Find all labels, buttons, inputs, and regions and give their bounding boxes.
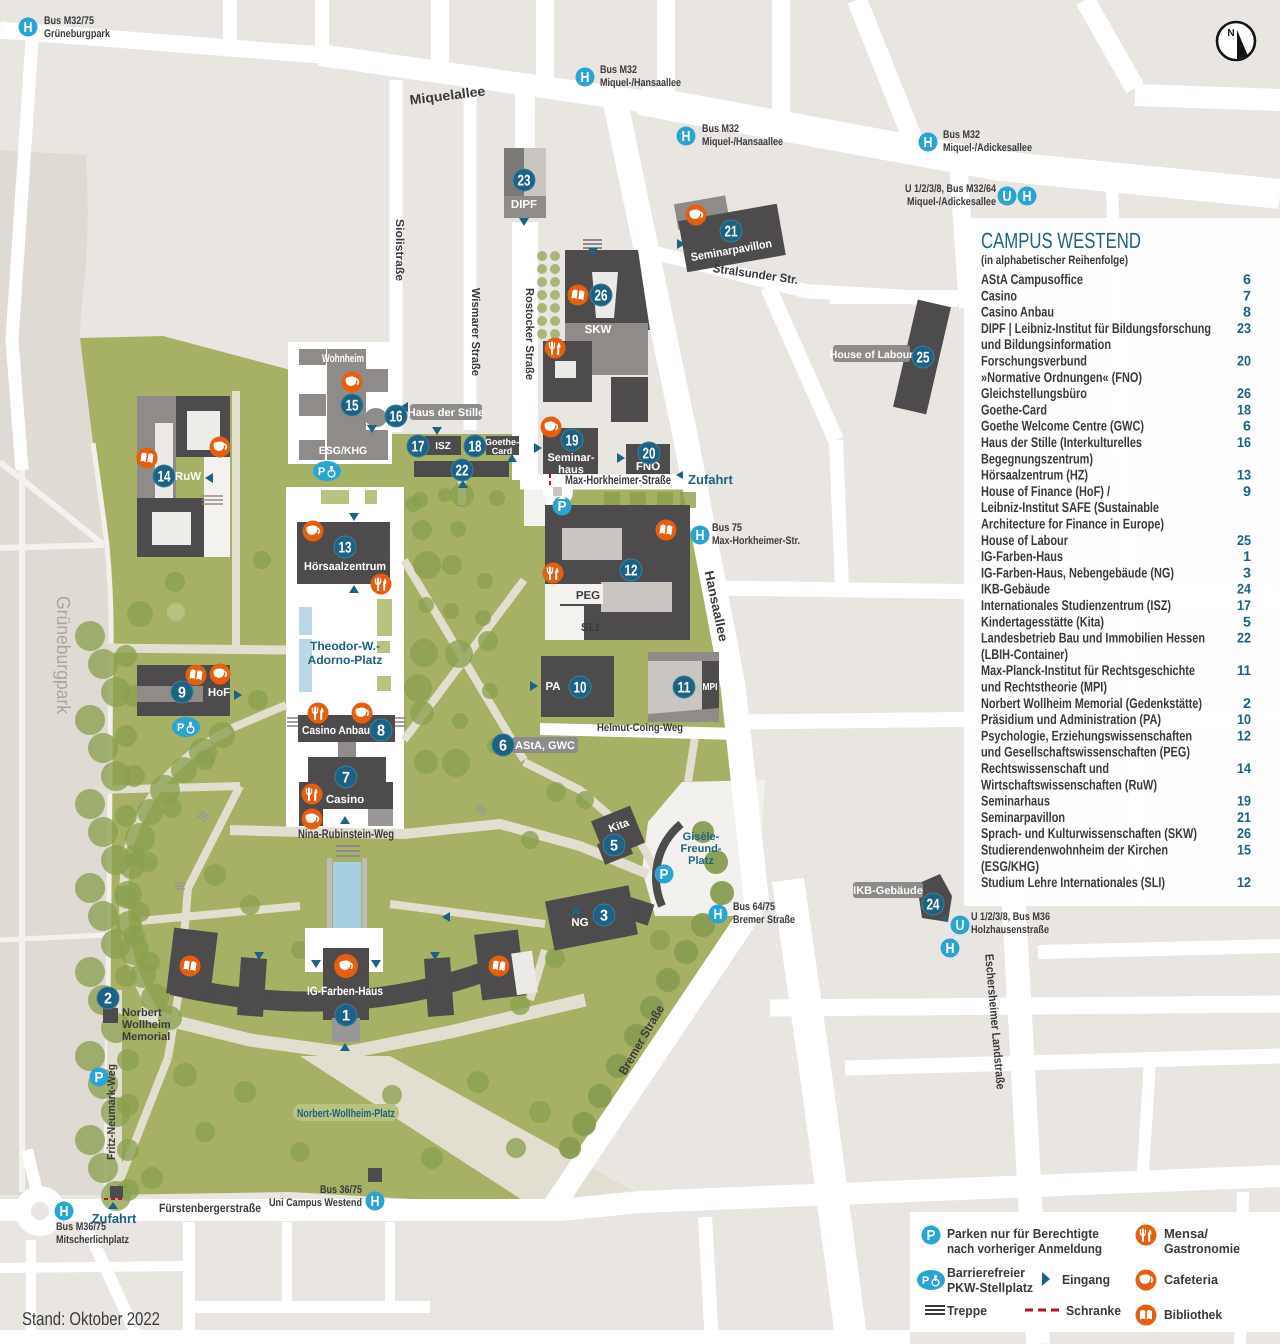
svg-text:Eingang: Eingang — [1062, 1272, 1110, 1287]
svg-text:Seminarpavillon: Seminarpavillon — [981, 809, 1065, 825]
svg-text:17: 17 — [1237, 597, 1251, 613]
svg-text:24: 24 — [1237, 581, 1251, 597]
svg-text:U 1/2/3/8, Bus M36: U 1/2/3/8, Bus M36 — [971, 911, 1050, 923]
svg-text:Architecture for Finance in Eu: Architecture for Finance in Europe) — [981, 516, 1164, 532]
svg-text:IG-Farben-Haus: IG-Farben-Haus — [981, 548, 1063, 564]
svg-text:18: 18 — [469, 439, 482, 456]
svg-text:Zufahrt: Zufahrt — [688, 472, 733, 487]
svg-text:Internationales Studienzentrum: Internationales Studienzentrum (ISZ) — [981, 597, 1171, 613]
svg-text:Miquel-/Adickesallee: Miquel-/Adickesallee — [907, 196, 996, 208]
svg-text:Rechtswissenschaft und: Rechtswissenschaft und — [981, 760, 1109, 776]
svg-text:16: 16 — [1237, 434, 1251, 450]
svg-text:Hörsaalzentrum: Hörsaalzentrum — [304, 561, 386, 573]
svg-text:Platz: Platz — [688, 855, 714, 867]
svg-text:Seminar-: Seminar- — [547, 452, 594, 464]
svg-text:IKB-Gebäude: IKB-Gebäude — [981, 581, 1050, 597]
svg-text:6: 6 — [1243, 418, 1251, 434]
svg-text:Forschungsverbund: Forschungsverbund — [981, 353, 1087, 369]
svg-text:Sprach- und Kulturwissenschaft: Sprach- und Kulturwissenschaften (SKW) — [981, 825, 1197, 841]
svg-text:DIPF | Leibniz-Institut für Bi: DIPF | Leibniz-Institut für Bildungsfors… — [981, 320, 1211, 337]
svg-text:H: H — [682, 129, 691, 145]
svg-text:Fürstenbergerstraße: Fürstenbergerstraße — [159, 1201, 261, 1215]
svg-text:HoF: HoF — [208, 687, 230, 699]
svg-text:ESG/KHG: ESG/KHG — [319, 445, 367, 457]
svg-text:Norbert Wollheim Memorial (Ged: Norbert Wollheim Memorial (Gedenkstätte) — [981, 695, 1202, 711]
svg-text:Uni Campus Westend: Uni Campus Westend — [269, 1197, 362, 1209]
svg-text:Bus 36/75: Bus 36/75 — [320, 1184, 362, 1196]
svg-text:Casino: Casino — [326, 794, 364, 806]
svg-text:12: 12 — [1237, 727, 1251, 743]
svg-text:Grüneburgpark: Grüneburgpark — [52, 596, 73, 714]
svg-text:Max-Horkheimer-Str.: Max-Horkheimer-Str. — [712, 535, 800, 547]
svg-text:IG-Farben-Haus, Nebengebäude (: IG-Farben-Haus, Nebengebäude (NG) — [981, 564, 1174, 580]
svg-text:10: 10 — [574, 680, 587, 697]
svg-text:Studierendenwohnheim der Kirch: Studierendenwohnheim der Kirchen — [981, 842, 1168, 858]
svg-text:Stand: Oktober 2022: Stand: Oktober 2022 — [22, 1308, 160, 1329]
svg-text:PEG: PEG — [576, 590, 600, 602]
svg-text:House of Labour: House of Labour — [830, 349, 913, 361]
svg-text:haus: haus — [558, 464, 584, 476]
svg-text:Gleichstellungsbüro: Gleichstellungsbüro — [981, 385, 1087, 401]
svg-text:Leibniz-Institut SAFE (Sustain: Leibniz-Institut SAFE (Sustainable — [981, 499, 1159, 515]
svg-text:und Gesellschaftswissenschafte: und Gesellschaftswissenschaften (PEG) — [981, 744, 1190, 760]
svg-text:21: 21 — [1237, 809, 1251, 825]
svg-text:Miquel-/Hansaallee: Miquel-/Hansaallee — [600, 77, 681, 89]
svg-text:Treppe: Treppe — [947, 1303, 987, 1318]
svg-text:P: P — [95, 1070, 104, 1086]
svg-text:8: 8 — [1243, 304, 1251, 320]
svg-text:9: 9 — [1243, 483, 1251, 499]
svg-text:P: P — [922, 1275, 929, 1287]
svg-text:11: 11 — [678, 680, 691, 697]
svg-text:19: 19 — [566, 433, 579, 450]
svg-text:26: 26 — [1237, 385, 1251, 401]
svg-text:12: 12 — [625, 563, 638, 580]
svg-text:21: 21 — [725, 224, 738, 241]
svg-text:House of Finance (HoF) /: House of Finance (HoF) / — [981, 483, 1110, 499]
svg-text:6: 6 — [499, 738, 507, 755]
svg-text:16: 16 — [390, 409, 403, 426]
svg-text:22: 22 — [456, 463, 469, 480]
svg-text:Hörsaalzentrum (HZ): Hörsaalzentrum (HZ) — [981, 467, 1088, 483]
svg-text:5: 5 — [610, 838, 618, 855]
svg-text:U: U — [1003, 189, 1012, 205]
svg-text:H: H — [581, 70, 590, 86]
svg-text:1: 1 — [1243, 548, 1251, 564]
svg-text:10: 10 — [1237, 711, 1251, 727]
svg-text:Max-Planck-Institut für Rechts: Max-Planck-Institut für Rechtsgeschichte — [981, 662, 1195, 678]
svg-text:Bus 64/75: Bus 64/75 — [733, 901, 775, 913]
svg-text:H: H — [371, 1194, 380, 1210]
svg-text:DIPF: DIPF — [511, 199, 537, 211]
svg-text:23: 23 — [518, 173, 531, 190]
svg-text:7: 7 — [1243, 287, 1251, 303]
svg-text:Norbert-Wollheim-Platz: Norbert-Wollheim-Platz — [297, 1108, 395, 1120]
svg-text:Casino Anbau: Casino Anbau — [981, 304, 1054, 320]
svg-text:Mensa/: Mensa/ — [1164, 1226, 1208, 1241]
svg-text:Gisèle-: Gisèle- — [683, 831, 720, 843]
svg-text:Bus 75: Bus 75 — [712, 522, 742, 534]
svg-text:U: U — [956, 918, 965, 934]
svg-text:Freund-: Freund- — [681, 843, 722, 855]
svg-text:(in alphabetischer Reihenfolge: (in alphabetischer Reihenfolge) — [981, 253, 1128, 267]
svg-text:Cafeteria: Cafeteria — [1164, 1272, 1219, 1287]
svg-text:25: 25 — [1237, 532, 1251, 548]
svg-text:26: 26 — [1237, 825, 1251, 841]
svg-text:20: 20 — [1237, 353, 1251, 369]
svg-text:nach vorheriger Anmeldung: nach vorheriger Anmeldung — [947, 1241, 1102, 1256]
svg-text:H: H — [924, 135, 933, 151]
svg-text:22: 22 — [1237, 630, 1251, 646]
svg-text:Bibliothek: Bibliothek — [1164, 1307, 1223, 1322]
svg-text:3: 3 — [1243, 564, 1251, 580]
svg-text:14: 14 — [158, 469, 171, 486]
svg-text:Grüneburgpark: Grüneburgpark — [44, 28, 111, 40]
svg-text:H: H — [1023, 189, 1032, 205]
svg-text:P: P — [318, 466, 325, 478]
svg-text:IG-Farben-Haus: IG-Farben-Haus — [307, 984, 383, 998]
svg-text:NG: NG — [571, 917, 588, 929]
svg-text:P: P — [660, 867, 669, 883]
svg-text:(LBIH-Container): (LBIH-Container) — [981, 646, 1068, 662]
svg-text:Parken nur für Berechtigte: Parken nur für Berechtigte — [947, 1226, 1099, 1241]
svg-text:Casino Anbau: Casino Anbau — [302, 725, 370, 737]
svg-text:Bus M32: Bus M32 — [600, 64, 637, 76]
svg-text:Studium Lehre Internationales: Studium Lehre Internationales (SLI) — [981, 874, 1165, 890]
svg-text:5: 5 — [1243, 613, 1251, 629]
svg-text:Miquel-/Hansaallee: Miquel-/Hansaallee — [702, 136, 783, 148]
svg-text:17: 17 — [412, 439, 425, 456]
svg-text:PKW-Stellplatz: PKW-Stellplatz — [947, 1280, 1033, 1295]
svg-text:Bus M36/75: Bus M36/75 — [56, 1221, 106, 1233]
svg-text:3: 3 — [600, 908, 608, 925]
svg-text:H: H — [24, 20, 33, 36]
svg-text:Bremer Straße: Bremer Straße — [733, 914, 795, 926]
svg-text:Norbert: Norbert — [122, 1007, 162, 1019]
svg-text:SKW: SKW — [585, 324, 612, 336]
svg-text:13: 13 — [339, 540, 352, 557]
svg-text:6: 6 — [1243, 271, 1251, 287]
svg-text:Goethe Welcome Centre (GWC): Goethe Welcome Centre (GWC) — [981, 418, 1144, 434]
svg-text:House of Labour: House of Labour — [981, 532, 1068, 548]
svg-text:AStA Campusoffice: AStA Campusoffice — [981, 271, 1083, 287]
svg-text:AStA, GWC: AStA, GWC — [515, 740, 575, 752]
svg-text:19: 19 — [1237, 793, 1251, 809]
svg-text:Rostocker Straße: Rostocker Straße — [523, 288, 535, 380]
svg-text:23: 23 — [1237, 320, 1251, 336]
svg-text:Theodor-W.-: Theodor-W.- — [310, 639, 380, 653]
svg-text:Begegnungszentrum): Begegnungszentrum) — [981, 450, 1093, 466]
svg-text:26: 26 — [595, 288, 608, 305]
svg-text:(ESG/KHG): (ESG/KHG) — [981, 858, 1039, 874]
svg-text:Gastronomie: Gastronomie — [1164, 1241, 1240, 1256]
svg-text:CAMPUS WESTEND: CAMPUS WESTEND — [981, 228, 1141, 253]
svg-text:Adorno-Platz: Adorno-Platz — [308, 653, 383, 667]
svg-text:Wollheim: Wollheim — [122, 1019, 171, 1031]
svg-text:Kindertagesstätte (Kita): Kindertagesstätte (Kita) — [981, 613, 1104, 629]
svg-text:Holzhausenstraße: Holzhausenstraße — [971, 924, 1049, 936]
svg-text:Memorial: Memorial — [122, 1031, 170, 1043]
svg-text:P: P — [558, 499, 567, 515]
svg-text:14: 14 — [1237, 760, 1251, 776]
svg-text:2: 2 — [1243, 695, 1251, 711]
svg-text:und Rechtstheorie (MPI): und Rechtstheorie (MPI) — [981, 679, 1107, 695]
svg-text:H: H — [714, 907, 723, 923]
svg-text:Wirtschaftswissenschaften (RuW: Wirtschaftswissenschaften (RuW) — [981, 776, 1157, 792]
svg-text:Landesbetrieb Bau und Immobili: Landesbetrieb Bau und Immobilien Hessen — [981, 630, 1205, 646]
svg-text:1: 1 — [342, 1008, 350, 1025]
svg-text:P: P — [177, 722, 184, 734]
svg-text:MPI: MPI — [703, 682, 718, 693]
svg-text:11: 11 — [1237, 662, 1251, 678]
svg-text:Mitscherlichplatz: Mitscherlichplatz — [56, 1234, 129, 1246]
svg-text:Goethe-Card: Goethe-Card — [981, 401, 1047, 417]
svg-text:Miquel-/Adickesallee: Miquel-/Adickesallee — [943, 142, 1032, 154]
svg-text:15: 15 — [1237, 842, 1251, 858]
svg-text:Wohnheim: Wohnheim — [322, 353, 364, 365]
svg-text:H: H — [696, 528, 705, 544]
svg-text:Card: Card — [492, 446, 513, 456]
svg-text:PA: PA — [545, 681, 560, 693]
svg-text:Seminarhaus: Seminarhaus — [981, 793, 1050, 809]
svg-text:Helmut-Coing-Weg: Helmut-Coing-Weg — [597, 722, 683, 734]
svg-text:Haus der Stille (Interkulturel: Haus der Stille (Interkulturelles — [981, 434, 1142, 450]
svg-text:Präsidium und Administration (: Präsidium und Administration (PA) — [981, 711, 1161, 727]
svg-text:ISZ: ISZ — [435, 441, 451, 452]
svg-text:»Normative Ordnungen« (FNO): »Normative Ordnungen« (FNO) — [981, 369, 1142, 385]
svg-text:12: 12 — [1237, 874, 1251, 890]
svg-text:15: 15 — [346, 398, 359, 415]
svg-text:Wismarer Straße: Wismarer Straße — [469, 288, 481, 376]
svg-text:Bus M32: Bus M32 — [702, 123, 739, 135]
svg-text:Casino: Casino — [981, 287, 1017, 303]
svg-text:20: 20 — [643, 446, 656, 463]
svg-text:Psychologie, Erziehungswissens: Psychologie, Erziehungswissenschaften — [981, 727, 1192, 743]
svg-text:8: 8 — [377, 723, 385, 740]
svg-text:U 1/2/3/8, Bus M32/64: U 1/2/3/8, Bus M32/64 — [905, 183, 997, 195]
svg-text:18: 18 — [1237, 401, 1251, 417]
svg-text:Schranke: Schranke — [1066, 1303, 1121, 1318]
svg-text:9: 9 — [178, 685, 186, 702]
svg-text:Siolistraße: Siolistraße — [393, 219, 405, 281]
svg-text:RuW: RuW — [175, 471, 201, 483]
svg-text:Barrierefreier: Barrierefreier — [947, 1265, 1025, 1280]
svg-text:IKB-Gebäude: IKB-Gebäude — [853, 885, 923, 897]
svg-text:SLI: SLI — [581, 622, 599, 634]
svg-text:Bus M32/75: Bus M32/75 — [44, 15, 94, 27]
svg-text:24: 24 — [927, 897, 940, 914]
svg-text:H: H — [60, 1204, 69, 1220]
svg-text:und Bildungsinformation: und Bildungsinformation — [981, 336, 1111, 352]
svg-text:7: 7 — [342, 770, 350, 787]
svg-text:2: 2 — [104, 991, 112, 1008]
svg-text:Haus der Stille: Haus der Stille — [408, 407, 484, 419]
svg-text:P: P — [927, 1228, 936, 1244]
svg-text:N: N — [1227, 28, 1234, 39]
svg-text:Bus M32: Bus M32 — [943, 129, 980, 141]
svg-text:13: 13 — [1237, 467, 1251, 483]
svg-text:H: H — [946, 941, 955, 957]
svg-text:25: 25 — [917, 350, 930, 367]
